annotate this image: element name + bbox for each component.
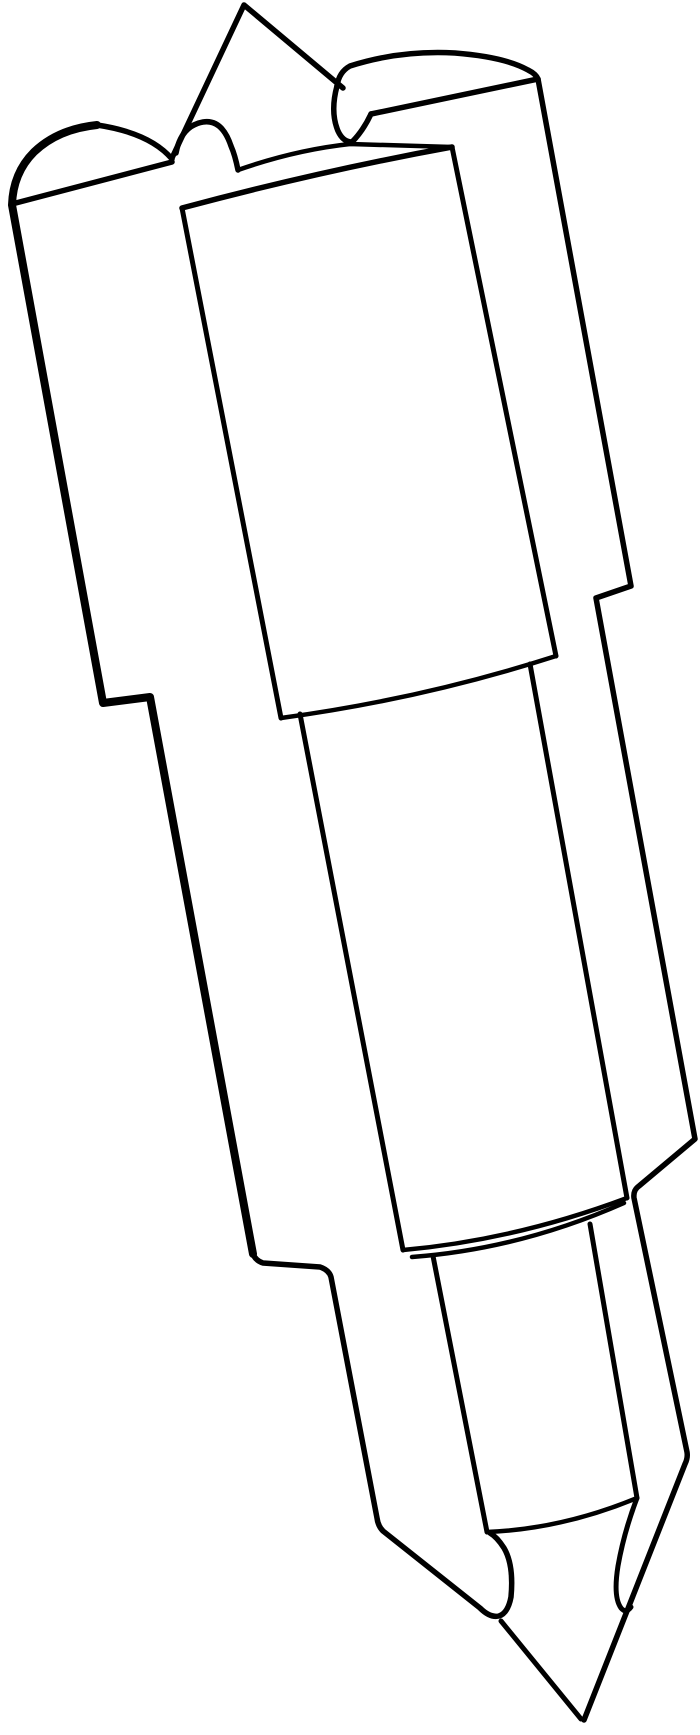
- lower-cylinder-right-edge: [590, 1224, 637, 1498]
- mid-cylinder-right-edge: [530, 664, 627, 1198]
- top-face-front-edge: [182, 147, 452, 208]
- upper-cylinder-bottom-seam: [281, 656, 556, 718]
- mid-cylinder-left-edge: [300, 714, 403, 1250]
- line-drawing: [0, 0, 700, 1735]
- front-lug-bump: [176, 122, 238, 170]
- drawing-paths-group: [12, 5, 695, 1720]
- right-silhouette-and-cone-right-edge: [538, 79, 695, 1720]
- upper-cylinder-right-edge: [452, 147, 556, 656]
- left-tab-front-edge: [12, 162, 172, 204]
- right-tab: [337, 53, 538, 114]
- left-silhouette-upper: [12, 125, 253, 1254]
- cone-base-seam: [487, 1498, 637, 1532]
- cone-left-edge: [501, 1621, 581, 1719]
- back-fin-triangle: [172, 5, 343, 158]
- lower-cylinder-left-edge: [433, 1256, 487, 1532]
- drawing-canvas: [0, 0, 700, 1735]
- upper-cylinder-left-edge: [182, 208, 281, 718]
- left-silhouette-lower-prong: [253, 1254, 512, 1616]
- left-tab-back-edge: [97, 125, 172, 159]
- top-cleft-notch: [334, 86, 371, 142]
